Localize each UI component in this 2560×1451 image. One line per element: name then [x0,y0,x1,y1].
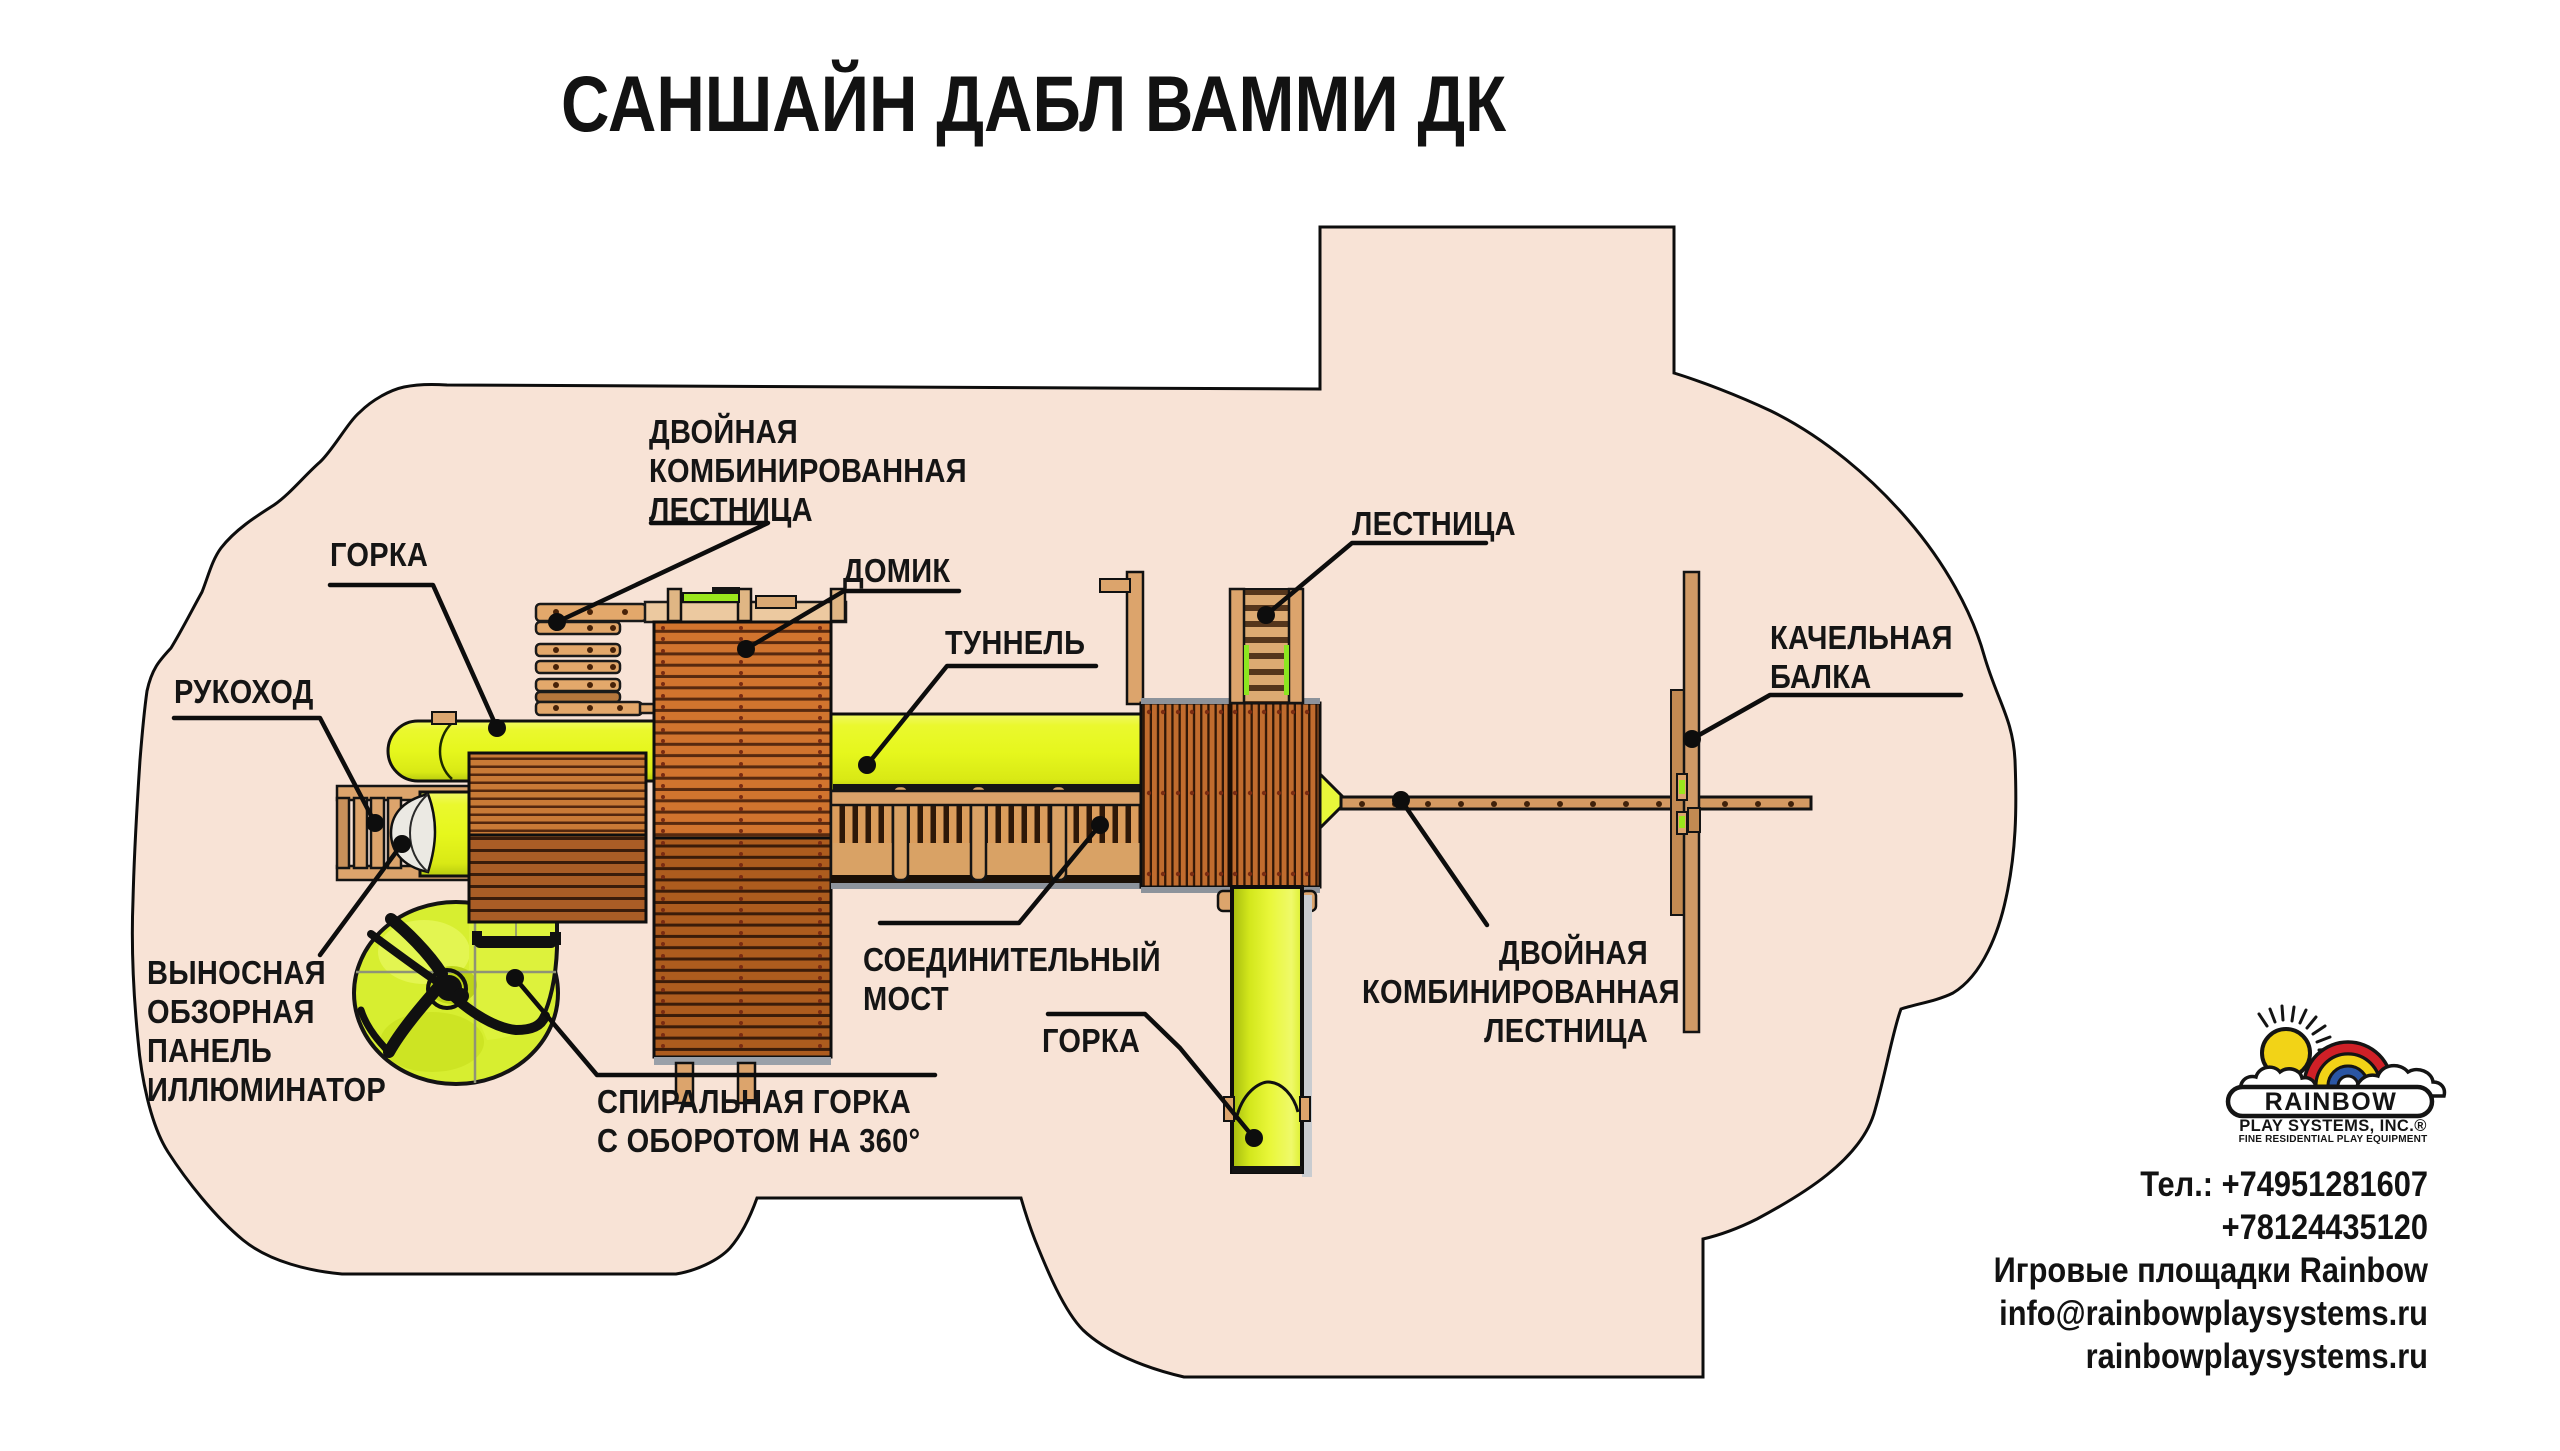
svg-text:RAINBOW: RAINBOW [2265,1088,2398,1116]
svg-text:FINE RESIDENTIAL PLAY EQUIPMEN: FINE RESIDENTIAL PLAY EQUIPMENT [2239,1134,2428,1145]
svg-text:PLAY SYSTEMS, INC.®: PLAY SYSTEMS, INC.® [2239,1117,2427,1135]
